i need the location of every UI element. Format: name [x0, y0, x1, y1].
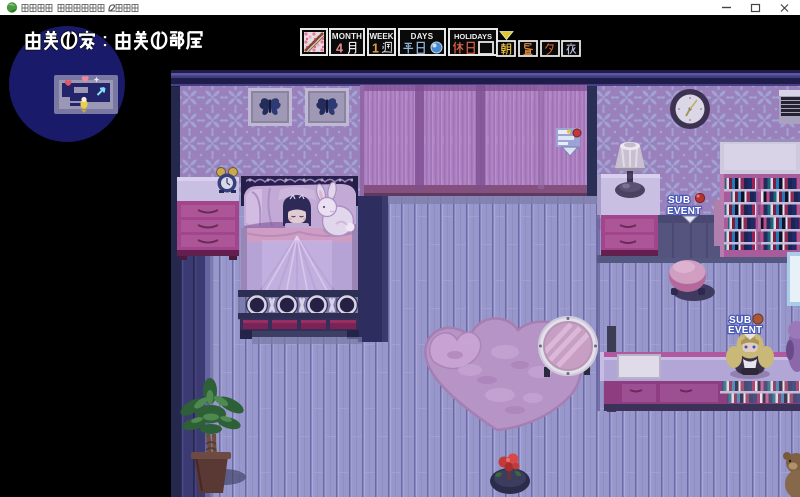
svg-text:4: 4	[336, 42, 343, 56]
svg-text:1: 1	[372, 42, 379, 56]
svg-text:WEEK: WEEK	[370, 32, 394, 41]
svg-text:EVENT: EVENT	[667, 206, 701, 217]
svg-text:MONTH: MONTH	[332, 32, 362, 41]
svg-text:SUB: SUB	[668, 195, 691, 206]
svg-text:DAYS: DAYS	[411, 32, 434, 41]
svg-text:HOLIDAYS: HOLIDAYS	[454, 32, 492, 41]
